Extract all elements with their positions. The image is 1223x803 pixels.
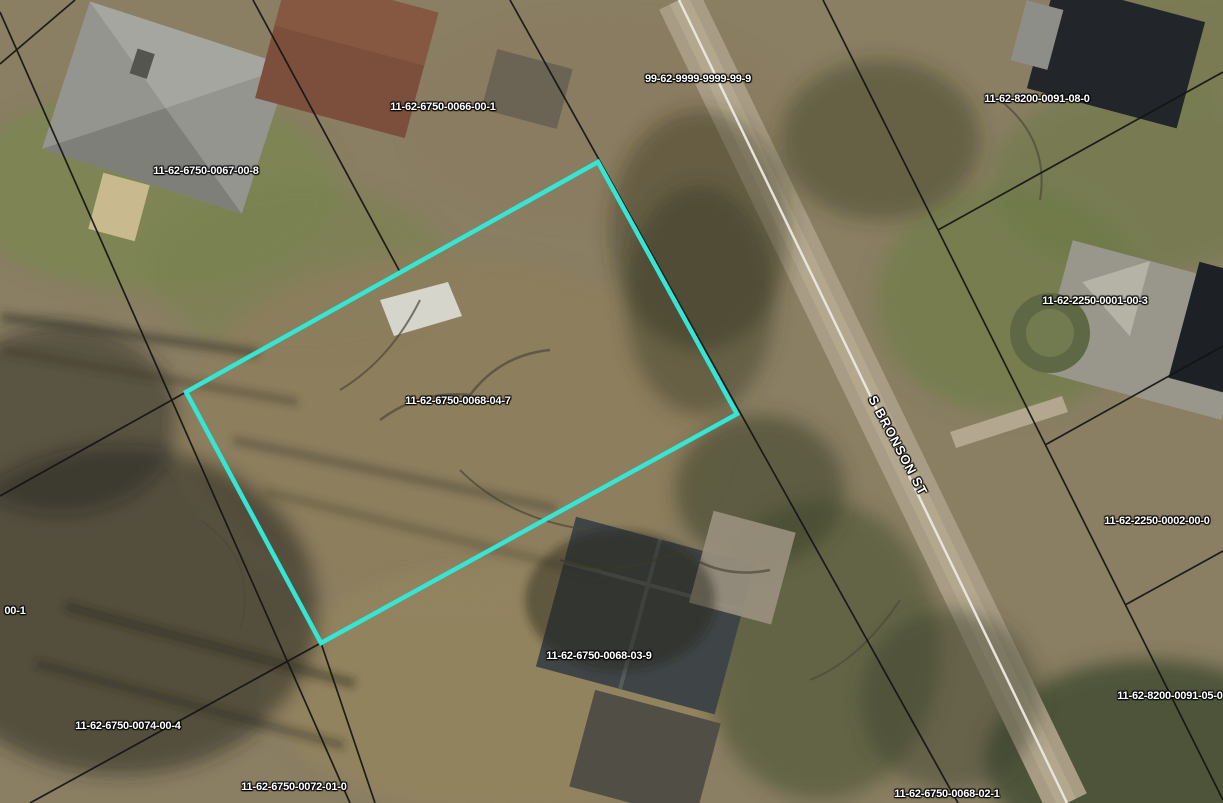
aerial-imagery-canvas[interactable] [0,0,1223,803]
map-viewport[interactable]: 11-62-6750-0066-00-1 99-62-9999-9999-99-… [0,0,1223,803]
